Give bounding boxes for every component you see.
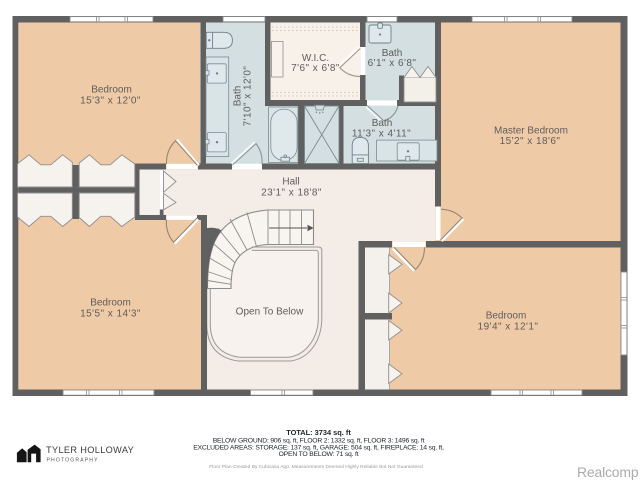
svg-text:TOTAL: 3734 sq. ft: TOTAL: 3734 sq. ft: [286, 428, 351, 437]
svg-text:Bedroom: Bedroom: [91, 85, 132, 96]
svg-text:Master Bedroom: Master Bedroom: [494, 126, 568, 137]
svg-text:Floor Plan Created By Cubicasa: Floor Plan Created By Cubicasa App, Meas…: [209, 464, 423, 470]
svg-text:Hall: Hall: [282, 177, 299, 188]
svg-text:15'5" x 14'3": 15'5" x 14'3": [80, 309, 141, 320]
svg-text:15'3" x 12'0": 15'3" x 12'0": [80, 96, 141, 107]
svg-text:7'6" x 6'8": 7'6" x 6'8": [291, 63, 340, 74]
svg-text:Bedroom: Bedroom: [486, 311, 527, 322]
svg-text:11'3" x 4'11": 11'3" x 4'11": [352, 129, 411, 140]
svg-text:Realcomp: Realcomp: [577, 464, 639, 480]
svg-text:7'10" x 12'0": 7'10" x 12'0": [242, 66, 253, 127]
svg-text:PHOTOGRAPHY: PHOTOGRAPHY: [47, 458, 99, 464]
svg-text:19'4" x 12'1": 19'4" x 12'1": [478, 322, 539, 333]
svg-text:Open To Below: Open To Below: [236, 307, 304, 318]
svg-text:Bath: Bath: [372, 118, 393, 129]
svg-text:TYLER HOLLOWAY: TYLER HOLLOWAY: [46, 445, 134, 455]
svg-text:Bedroom: Bedroom: [90, 298, 131, 309]
svg-text:BELOW GROUND: 906 sq. ft, FLOO: BELOW GROUND: 906 sq. ft, FLOOR 2: 1332 …: [213, 437, 425, 444]
svg-text:OPEN TO BELOW: 71 sq. ft: OPEN TO BELOW: 71 sq. ft: [279, 451, 359, 458]
svg-text:6'1" x 6'8": 6'1" x 6'8": [368, 58, 417, 69]
svg-text:23'1" x 18'8": 23'1" x 18'8": [261, 188, 322, 199]
svg-text:15'2" x 18'6": 15'2" x 18'6": [500, 136, 561, 147]
